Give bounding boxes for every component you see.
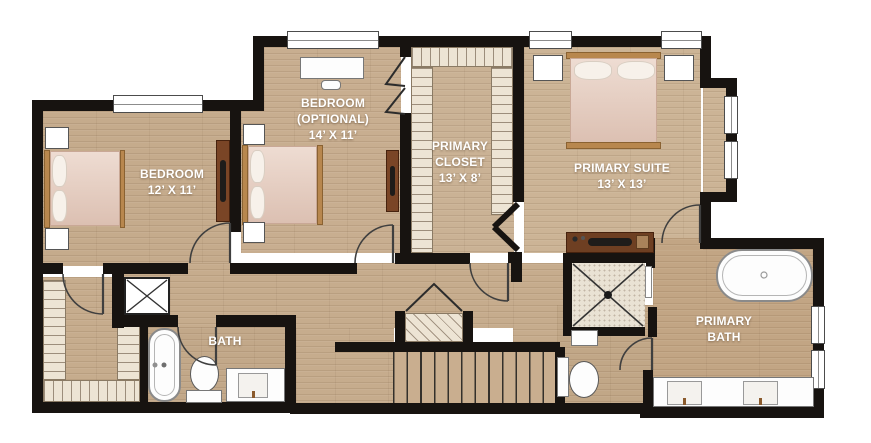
laundry-chute-icon (124, 277, 170, 315)
room-label-bath: BATH (165, 333, 285, 349)
wall (563, 253, 655, 263)
room-dims: 12’ X 11’ (102, 182, 242, 198)
window (287, 31, 379, 49)
wall (285, 315, 296, 413)
room-name: PRIMARY (669, 313, 779, 329)
stair-landing-floor (335, 352, 395, 403)
window (113, 95, 203, 113)
nightstand (45, 127, 69, 149)
pillow (574, 61, 612, 80)
window (661, 31, 702, 49)
desk-chair-icon (321, 80, 341, 90)
window (811, 306, 825, 344)
shower-glass-door (645, 266, 652, 298)
window (724, 96, 738, 134)
pillow (250, 150, 265, 183)
room-name: BATH (165, 333, 285, 349)
room-label-primary-bath: PRIMARY BATH (669, 313, 779, 345)
bed-footboard (317, 145, 323, 225)
wall (640, 407, 824, 418)
wall (700, 192, 737, 202)
freestanding-tub-icon (716, 249, 813, 302)
sink-icon (667, 381, 702, 405)
nightstand (664, 55, 694, 81)
pillow (52, 155, 67, 187)
room-label-bedroom-optional: BEDROOM (OPTIONAL) 14’ X 11’ (263, 95, 403, 143)
nightstand (45, 228, 69, 250)
sink-icon (238, 373, 268, 398)
wall (216, 315, 296, 327)
desk-icon (300, 57, 364, 79)
pillow (617, 61, 655, 80)
passage-floor (655, 238, 703, 250)
room-name: PRIMARY SUITE (537, 160, 707, 176)
wall (103, 263, 188, 274)
sink-icon (743, 381, 778, 405)
wall (140, 315, 148, 413)
room-name: BATH (669, 329, 779, 345)
shower-icon (572, 263, 645, 327)
window (529, 31, 572, 49)
floor-plan: BEDROOM 12’ X 11’ BEDROOM (OPTIONAL) 14’… (0, 0, 871, 443)
window (724, 141, 738, 179)
pillow (250, 186, 265, 219)
linen-closet-shelf (405, 313, 463, 342)
room-name: BEDROOM (102, 166, 242, 182)
wall-niche (571, 330, 598, 346)
bed-footboard (566, 142, 661, 149)
wall (32, 402, 296, 413)
walkin-shelf-bottom (43, 380, 140, 402)
wall (463, 311, 473, 352)
wall (335, 342, 560, 352)
room-label-primary-closet: PRIMARY CLOSET 13’ X 8’ (408, 138, 512, 186)
pillow (52, 190, 67, 222)
room-qualifier: (OPTIONAL) (263, 111, 403, 127)
nightstand (533, 55, 563, 81)
dresser-tray (636, 235, 649, 249)
room-label-bedroom-left: BEDROOM 12’ X 11’ (102, 166, 242, 198)
wall (648, 307, 657, 337)
wall (230, 263, 357, 274)
toilet-icon (190, 356, 219, 392)
closet-shelf-top (411, 47, 513, 67)
toilet-tank (557, 357, 569, 397)
wall (513, 36, 524, 202)
nightstand (243, 222, 265, 243)
wall (400, 36, 411, 57)
wall (395, 311, 405, 352)
nightstand (243, 124, 265, 145)
room-dims: 14’ X 11’ (263, 127, 403, 143)
walkin-shelf-right (117, 325, 140, 380)
wall (643, 370, 653, 414)
tv-icon (588, 238, 632, 246)
toilet-tank (186, 390, 222, 403)
wall (700, 78, 737, 88)
room-name: CLOSET (408, 154, 512, 170)
wall (32, 100, 43, 412)
walkin-shelf-left (43, 280, 66, 380)
wall (32, 263, 63, 274)
room-name: PRIMARY (408, 138, 512, 154)
room-name: BEDROOM (263, 95, 403, 111)
wall (290, 403, 657, 414)
wall (563, 253, 572, 336)
toilet-icon (569, 361, 599, 398)
wall (700, 238, 824, 249)
stairs-icon (393, 352, 557, 403)
room-dims: 13’ X 13’ (537, 176, 707, 192)
wall (511, 252, 522, 282)
room-dims: 13’ X 8’ (408, 170, 512, 186)
tv-icon (390, 166, 395, 196)
room-label-primary-suite: PRIMARY SUITE 13’ X 13’ (537, 160, 707, 192)
